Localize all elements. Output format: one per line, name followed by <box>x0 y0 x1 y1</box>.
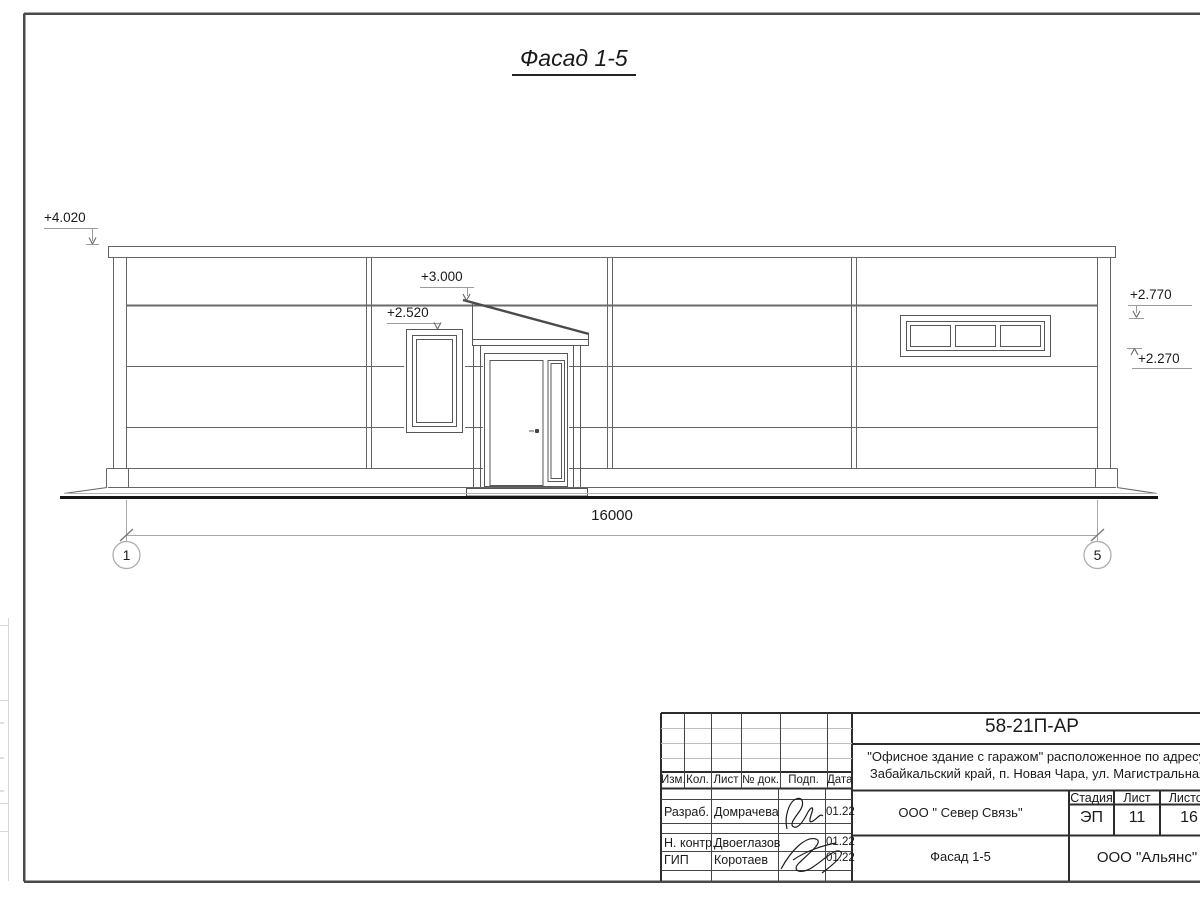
tb-header-podp: Подп. <box>780 774 827 787</box>
porch-post-left <box>474 346 481 487</box>
tb-name-gip: Коротаев <box>714 853 768 867</box>
tb-role-nkontr: Н. контр. <box>664 836 716 850</box>
tb-sheet-title: Фасад 1-5 <box>852 850 1069 865</box>
level-mark-3000 <box>420 288 474 301</box>
tb-header-list: Лист <box>711 774 741 787</box>
tb-role-razrab: Разраб. <box>664 805 709 819</box>
tb-name-razrab: Домрачева <box>714 805 779 819</box>
tb-date-razrab: 01.22 <box>826 806 852 819</box>
tb-date-nkontr: 01.22 <box>826 836 852 849</box>
level-mark-2770 <box>1128 306 1192 319</box>
tb-header-izm: Изм. <box>661 774 684 787</box>
drawing-title: Фасад 1-5 <box>512 45 636 76</box>
drawing-sheet: { "drawing": { "title": "Фасад 1-5", "le… <box>0 0 1200 900</box>
tb-doc-number: 58-21П-АР <box>852 716 1200 738</box>
axis-number-5: 5 <box>1083 547 1112 563</box>
door-handle <box>535 429 539 433</box>
parapet-cap <box>108 247 1116 258</box>
pilaster-bases <box>107 469 1118 488</box>
tb-name-nkontr: Двоеглазов <box>714 836 780 850</box>
building-elevation <box>60 247 1158 498</box>
porch-post-right <box>574 346 581 487</box>
tb-header-dok: № док. <box>741 774 780 787</box>
tb-sheets-label: Листов <box>1160 791 1200 805</box>
level-mark-4020 <box>44 229 99 245</box>
level-label-2270: +2.270 <box>1138 351 1180 367</box>
level-label-3000: +3.000 <box>421 269 463 285</box>
tb-header-data: Дата <box>827 774 852 787</box>
tb-stage-value: ЭП <box>1069 809 1114 827</box>
entrance-step <box>467 489 588 497</box>
tb-role-gip: ГИП <box>664 853 689 867</box>
tb-sheets-value: 16 <box>1160 809 1200 827</box>
tb-firm: ООО "Альянс" <box>1069 849 1200 866</box>
tb-sheet-value: 11 <box>1114 809 1160 827</box>
level-label-2770: +2.770 <box>1130 287 1172 303</box>
dimension-label: 16000 <box>562 507 662 524</box>
level-label-2520: +2.520 <box>387 305 429 321</box>
level-label-4020: +4.020 <box>44 210 86 226</box>
tb-company: ООО " Север Связь" <box>852 806 1069 821</box>
signature-razrab <box>786 798 823 829</box>
drawing-linework <box>0 0 1200 900</box>
tb-sheet-label: Лист <box>1114 791 1160 805</box>
tb-address-line2: Забайкальский край, п. Новая Чара, ул. М… <box>852 767 1200 782</box>
tb-address-line1: "Офисное здание с гаражом" расположенное… <box>852 750 1200 765</box>
tb-header-kol: Кол. <box>684 774 711 787</box>
axis-number-1: 1 <box>112 547 141 563</box>
left-edge-fragment <box>0 618 9 881</box>
tb-stage-label: Стадия <box>1069 791 1114 805</box>
ground-apron <box>60 488 1158 498</box>
tb-date-gip: 01.22 <box>826 852 852 865</box>
